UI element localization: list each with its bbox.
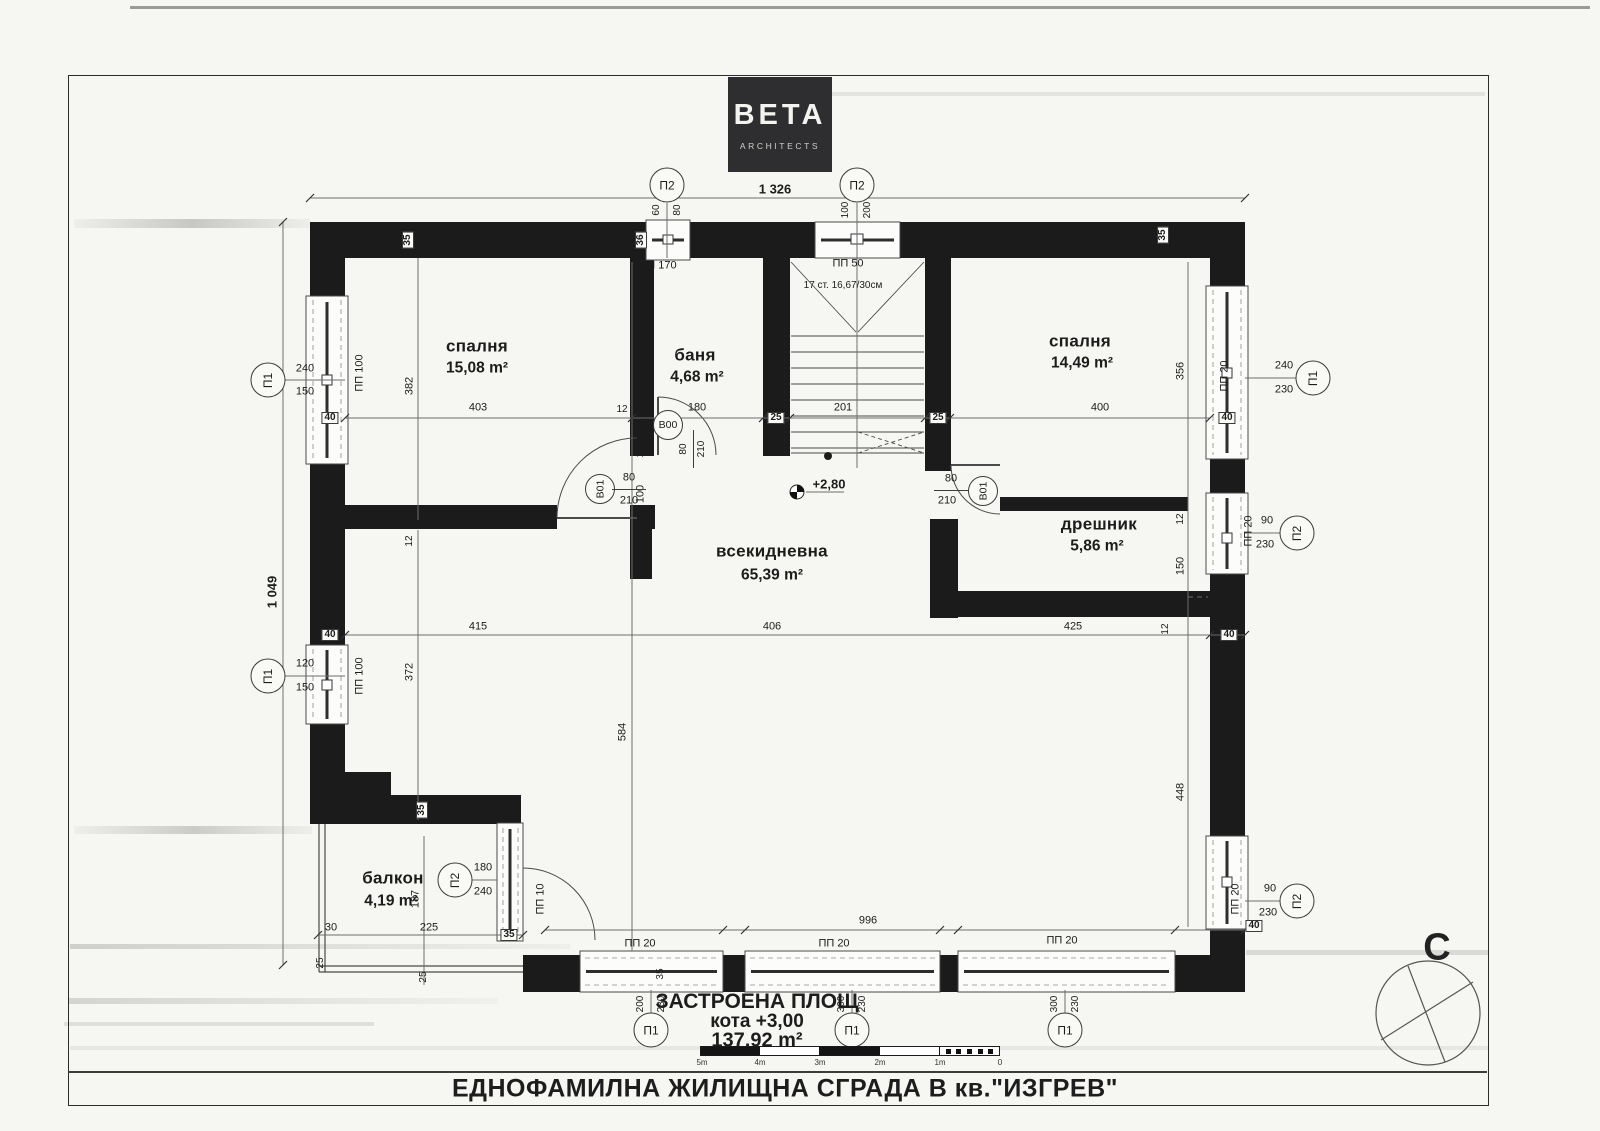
room-name-living: всекидневна [716, 543, 828, 560]
dim-label: 403 [469, 403, 487, 414]
axis-label: П2 [849, 178, 864, 192]
wall-thickness-label: 40 [1218, 412, 1235, 424]
scale-bar-dot [978, 1049, 983, 1054]
dim-label: 201 [834, 403, 852, 414]
dim-label: 80 [673, 204, 683, 215]
scale-bar-strip [700, 1046, 1000, 1056]
wall-thickness-label: 35 [402, 231, 414, 248]
wall-thickness-label: 40 [321, 629, 338, 641]
scale-label: 0 [998, 1058, 1002, 1067]
dim-label: 240 [1275, 361, 1293, 372]
dim-label: 225 [420, 923, 438, 934]
scale-label: 2m [874, 1058, 885, 1067]
logo-tagline: ARCHITECTS [740, 141, 820, 151]
dim-label: 150 [1176, 557, 1187, 575]
logo-brand-text: BETA [734, 98, 827, 132]
dim-label: 12 [1176, 603, 1186, 614]
window-tag-pp20: ПП 20 [1231, 883, 1242, 914]
axis-label: П1 [643, 1023, 658, 1037]
axis-marker-p1-bottom-2: П1 [835, 1013, 870, 1048]
drawing-sheet: BETA ARCHITECTS [0, 0, 1600, 1131]
door-label: В00 [659, 419, 678, 431]
window-tag-pp50: ПП 50 [832, 259, 863, 270]
axis-label: П2 [1290, 893, 1304, 908]
dim-label: 25 [316, 957, 326, 968]
dim-label: 12 [1176, 513, 1186, 524]
door-size: 80 [945, 474, 957, 485]
dim-label: 270 [636, 339, 647, 357]
north-compass-icon [1376, 961, 1480, 1065]
axis-marker-p2-balcony: П2 [438, 863, 473, 898]
scale-bar-segment [760, 1047, 820, 1055]
dim-label: 300 [1050, 996, 1060, 1013]
axis-label: П2 [659, 178, 674, 192]
scale-bar-segment [820, 1047, 879, 1055]
dim-label: 180 [474, 863, 492, 874]
dim-label: 200 [636, 996, 646, 1013]
window-tag-pp20: ПП 20 [1220, 360, 1231, 391]
dim-label: 100 [841, 202, 851, 219]
stairs-start-dot [824, 452, 832, 460]
dim-label: 230 [1256, 540, 1274, 551]
dim-label: 230 [1259, 908, 1277, 919]
north-label: С [1423, 927, 1450, 970]
level-mark: +2,80 [813, 478, 846, 491]
dim-label: 12 [616, 405, 627, 415]
axis-label: П1 [261, 372, 275, 387]
dim-label: 12 [1161, 623, 1171, 634]
dim-label: 415 [469, 622, 487, 633]
scale-bar-dot [967, 1049, 972, 1054]
wall-thickness-label: 25 [767, 412, 784, 424]
axis-marker-p2-right-bottom: П2 [1280, 884, 1315, 919]
axis-marker-p1-bottom-3: П1 [1048, 1013, 1083, 1048]
dim-label: 425 [1064, 622, 1082, 633]
sheet-title: ЕДНОФАМИЛНА ЖИЛИЩНА СГРАДА В кв."ИЗГРЕВ" [452, 1075, 1118, 1104]
scale-bar-segment [940, 1047, 999, 1055]
axis-label: П1 [261, 668, 275, 683]
room-area-dresser: 5,86 m² [1070, 538, 1123, 554]
scale-bar-dot [946, 1049, 951, 1054]
dim-total-height: 1 049 [266, 576, 279, 609]
dim-label: 35 [656, 968, 666, 979]
dim-label: 372 [405, 663, 416, 681]
wall-thickness-label: 40 [1245, 920, 1262, 932]
dim-total-width: 1 326 [759, 183, 792, 196]
room-name-balcony: балкон [362, 870, 424, 887]
axis-label: П1 [1057, 1023, 1072, 1037]
door-size: 210 [697, 441, 707, 458]
door-size: 210 [938, 496, 956, 507]
door-marker-b01-right: В01 [968, 476, 998, 506]
door-size: 80 [679, 443, 689, 454]
axis-marker-p1-bottom-1: П1 [634, 1013, 669, 1048]
dim-label: 230 [1275, 385, 1293, 396]
door-size-divider [612, 489, 646, 490]
axis-label: П2 [1290, 525, 1304, 540]
dim-label: 35 [1188, 959, 1198, 970]
wall-thickness-label: 35 [416, 801, 428, 818]
door-marker-b00: В00 [653, 410, 683, 440]
window-tag-pp20: ПП 20 [1244, 515, 1255, 546]
dim-label: 12 [636, 446, 646, 457]
dim-label: 230 [1071, 996, 1081, 1013]
stairs-note: 17 ст. 16,67/30см [804, 281, 883, 291]
room-area-bedroom1: 15,08 m² [446, 360, 508, 376]
door-label: В01 [977, 482, 989, 501]
scale-bar-dot [956, 1049, 961, 1054]
door-label: В01 [594, 480, 606, 499]
dim-label: 400 [1091, 403, 1109, 414]
window-tag-pp20: ПП 20 [624, 939, 655, 950]
scale-bar-segment [880, 1047, 940, 1055]
dim-label: 996 [859, 916, 877, 927]
dim-label: 240 [296, 364, 314, 375]
room-area-bedroom2: 14,49 m² [1051, 355, 1113, 371]
window-tag-pp170: ПП 170 [639, 261, 676, 272]
scale-label: 5m [696, 1058, 707, 1067]
wall-thickness-label: 36 [635, 231, 647, 248]
window-tag-pp100: ПП 100 [355, 657, 366, 694]
dim-label: 120 [296, 659, 314, 670]
dim-label: 382 [405, 377, 416, 395]
axis-label: П1 [844, 1023, 859, 1037]
axis-marker-p2-top-right: П2 [840, 168, 875, 203]
dim-label: 240 [474, 887, 492, 898]
axis-marker-p2-top-left: П2 [650, 168, 685, 203]
dim-label: 406 [763, 622, 781, 633]
level-marker-symbol [790, 485, 804, 499]
axis-label: П1 [1306, 370, 1320, 385]
window-tag-pp20: ПП 20 [1046, 936, 1077, 947]
door-size-divider [934, 490, 968, 491]
room-area-living: 65,39 m² [741, 567, 803, 583]
wall-thickness-label: 40 [1220, 629, 1237, 641]
wall-thickness-label: 40 [321, 412, 338, 424]
scale-label: 3m [814, 1058, 825, 1067]
scale-bar: 5m 4m 3m 2m 1m 0 [700, 1046, 1000, 1068]
dim-label: 356 [1176, 362, 1187, 380]
window-tag-pp10: ПП 10 [536, 883, 547, 914]
door-size: 210 [620, 496, 638, 507]
dim-label: 584 [618, 723, 629, 741]
room-name-dresser: дрешник [1061, 516, 1137, 533]
dim-label: 12 [405, 535, 415, 546]
wall-thickness-label: 35 [500, 929, 517, 941]
wall-thickness-label: 35 [1157, 226, 1169, 243]
dim-label: 90 [1261, 516, 1273, 527]
axis-marker-p1-left-lower: П1 [251, 659, 286, 694]
axis-marker-p1-left-upper: П1 [251, 363, 286, 398]
door-size-divider [693, 430, 694, 468]
dim-label: 200 [863, 202, 873, 219]
dim-label: 187 [411, 890, 422, 908]
dim-label: 448 [1176, 783, 1187, 801]
door-marker-b01-left: В01 [585, 474, 615, 504]
dim-label: 150 [296, 387, 314, 398]
window-tag-pp20: ПП 20 [818, 939, 849, 950]
architect-logo: BETA ARCHITECTS [728, 77, 832, 172]
room-area-bath: 4,68 m² [670, 369, 723, 385]
axis-marker-p1-right: П1 [1296, 361, 1331, 396]
room-name-bedroom1: спалня [446, 338, 508, 355]
axis-label: П2 [448, 872, 462, 887]
dim-label: 12 [636, 534, 646, 545]
axis-marker-p2-right-mid: П2 [1280, 516, 1315, 551]
dim-label: 90 [1264, 884, 1276, 895]
scale-label: 4m [754, 1058, 765, 1067]
room-name-bedroom2: спалня [1049, 333, 1111, 350]
dim-label: 25 [419, 971, 429, 982]
room-name-bath: баня [674, 347, 715, 364]
dim-label: 150 [296, 683, 314, 694]
wall-thickness-label: 25 [929, 412, 946, 424]
scale-bar-segment [701, 1047, 760, 1055]
scale-bar-dot [988, 1049, 993, 1054]
dim-label: 230 [858, 996, 868, 1013]
dim-label: 180 [688, 403, 706, 414]
door-size: 80 [623, 473, 635, 484]
dim-label: 60 [652, 204, 662, 215]
dim-label: 30 [325, 923, 337, 934]
window-tag-pp100: ПП 100 [355, 354, 366, 391]
scale-label: 1m [934, 1058, 945, 1067]
